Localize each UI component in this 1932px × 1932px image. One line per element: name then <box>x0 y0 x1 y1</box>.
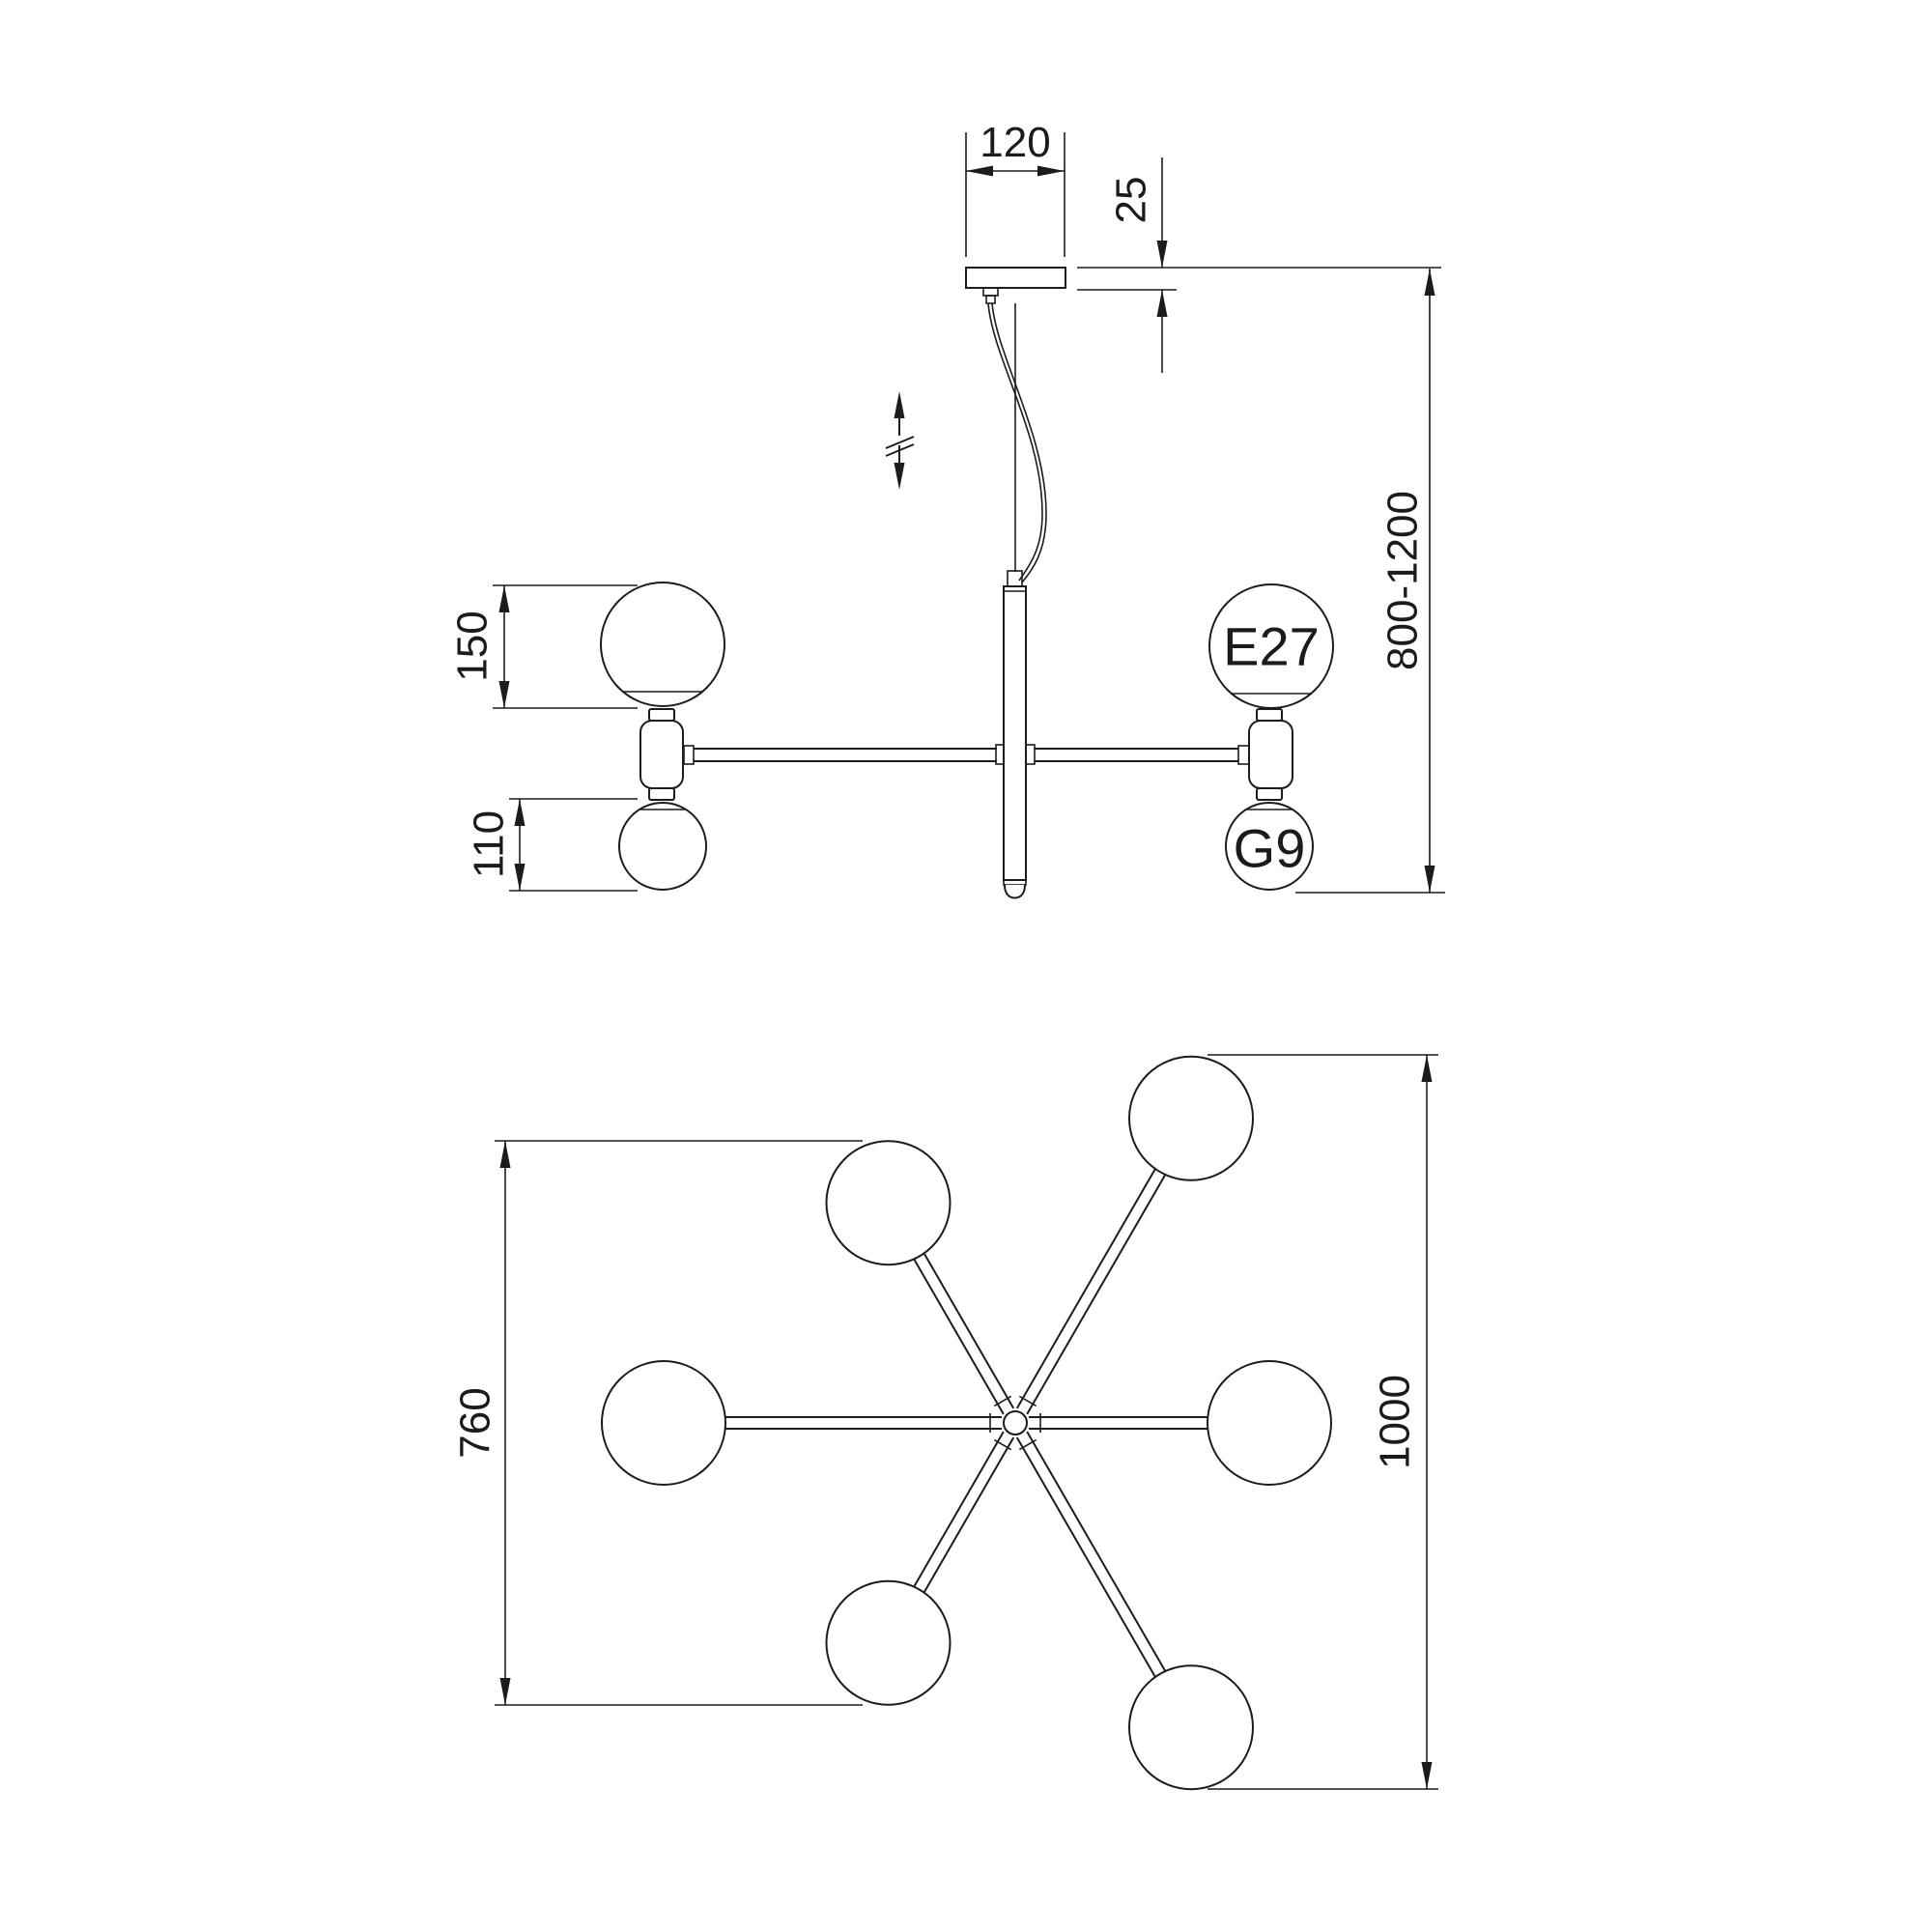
spoke-arms <box>602 1057 1331 1789</box>
spoke-line <box>1017 1168 1156 1408</box>
arrowhead-icon <box>1037 166 1065 177</box>
spoke-line <box>914 1432 1004 1587</box>
arrowhead-icon <box>895 463 905 490</box>
rod-end-cap <box>1005 885 1025 898</box>
small-globe <box>619 803 706 890</box>
technical-drawing-page: 120 25 <box>0 0 1932 1932</box>
socket-neck <box>649 709 674 721</box>
large-socket-label: E27 <box>1223 616 1320 677</box>
socket-neck <box>1257 709 1282 721</box>
dim-inner-span-label: 760 <box>452 1387 499 1458</box>
arrowhead-icon <box>895 391 905 418</box>
dim-canopy-width: 120 <box>966 119 1065 257</box>
arrowhead-icon <box>1157 290 1168 317</box>
arrowhead-icon <box>1422 1055 1433 1082</box>
dim-outer-span-label: 1000 <box>1372 1375 1419 1469</box>
arrowhead-icon <box>1157 241 1168 268</box>
dim-canopy-height: 25 <box>1077 157 1441 373</box>
globe-top-view <box>1207 1361 1331 1485</box>
right-arm <box>1026 745 1249 764</box>
left-arm <box>684 745 1004 764</box>
spoke-line <box>1027 1174 1166 1414</box>
right-lamp-assembly: E27 G9 <box>1209 584 1333 890</box>
socket-neck <box>649 788 674 800</box>
spoke-line <box>923 1437 1013 1593</box>
spoke-line <box>923 1253 1013 1408</box>
dim-canopy-height-label: 25 <box>1108 177 1155 224</box>
globe-top-view <box>827 1141 951 1264</box>
rod-body <box>1004 586 1026 880</box>
spoke-line <box>914 1259 1004 1414</box>
spoke-line <box>1017 1437 1156 1678</box>
dim-large-globe-label: 150 <box>449 611 497 681</box>
arrowhead-icon <box>1422 1762 1433 1789</box>
socket-neck <box>1257 788 1282 800</box>
power-cord <box>992 303 1046 582</box>
spoke-line <box>1027 1432 1166 1672</box>
center-hub <box>1004 1411 1027 1435</box>
central-rod <box>1004 571 1026 898</box>
arrowhead-icon <box>1425 269 1435 296</box>
small-socket-label: G9 <box>1234 818 1306 879</box>
left-lamp-assembly <box>601 582 724 890</box>
dimension-arrowheads <box>499 166 1435 1790</box>
globe-top-view <box>1129 1665 1253 1789</box>
socket-body <box>640 721 683 788</box>
socket-body <box>1249 721 1293 788</box>
arrowhead-icon <box>500 1141 511 1168</box>
arrowhead-icon <box>1425 866 1435 893</box>
arrowhead-icon <box>515 864 526 891</box>
large-globe <box>601 582 724 706</box>
arrowhead-icon <box>966 166 993 177</box>
globe-top-view <box>1129 1057 1253 1180</box>
dim-canopy-width-label: 120 <box>980 119 1050 166</box>
top-view: 760 1000 <box>452 1055 1439 1789</box>
cord-grip-tip <box>986 296 995 303</box>
cord-grip <box>983 288 998 296</box>
pendant-lamp-dimension-drawing: 120 25 <box>0 0 1932 1932</box>
arrowhead-icon <box>515 799 526 826</box>
arrowhead-icon <box>500 1678 511 1705</box>
dim-small-globe-label: 110 <box>466 810 513 878</box>
globe-top-view <box>827 1581 951 1705</box>
globe-top-view <box>602 1361 725 1485</box>
dim-small-globe: 110 <box>466 799 639 891</box>
height-adjust-arrow-icon <box>886 418 914 463</box>
arrowhead-icon <box>499 681 510 708</box>
ceiling-canopy <box>966 268 1065 288</box>
arrowhead-icon <box>499 585 510 612</box>
dim-suspension-height: 800-1200 <box>1295 269 1445 893</box>
front-view: 120 25 <box>449 119 1446 898</box>
dim-suspension-height-label: 800-1200 <box>1379 491 1427 670</box>
